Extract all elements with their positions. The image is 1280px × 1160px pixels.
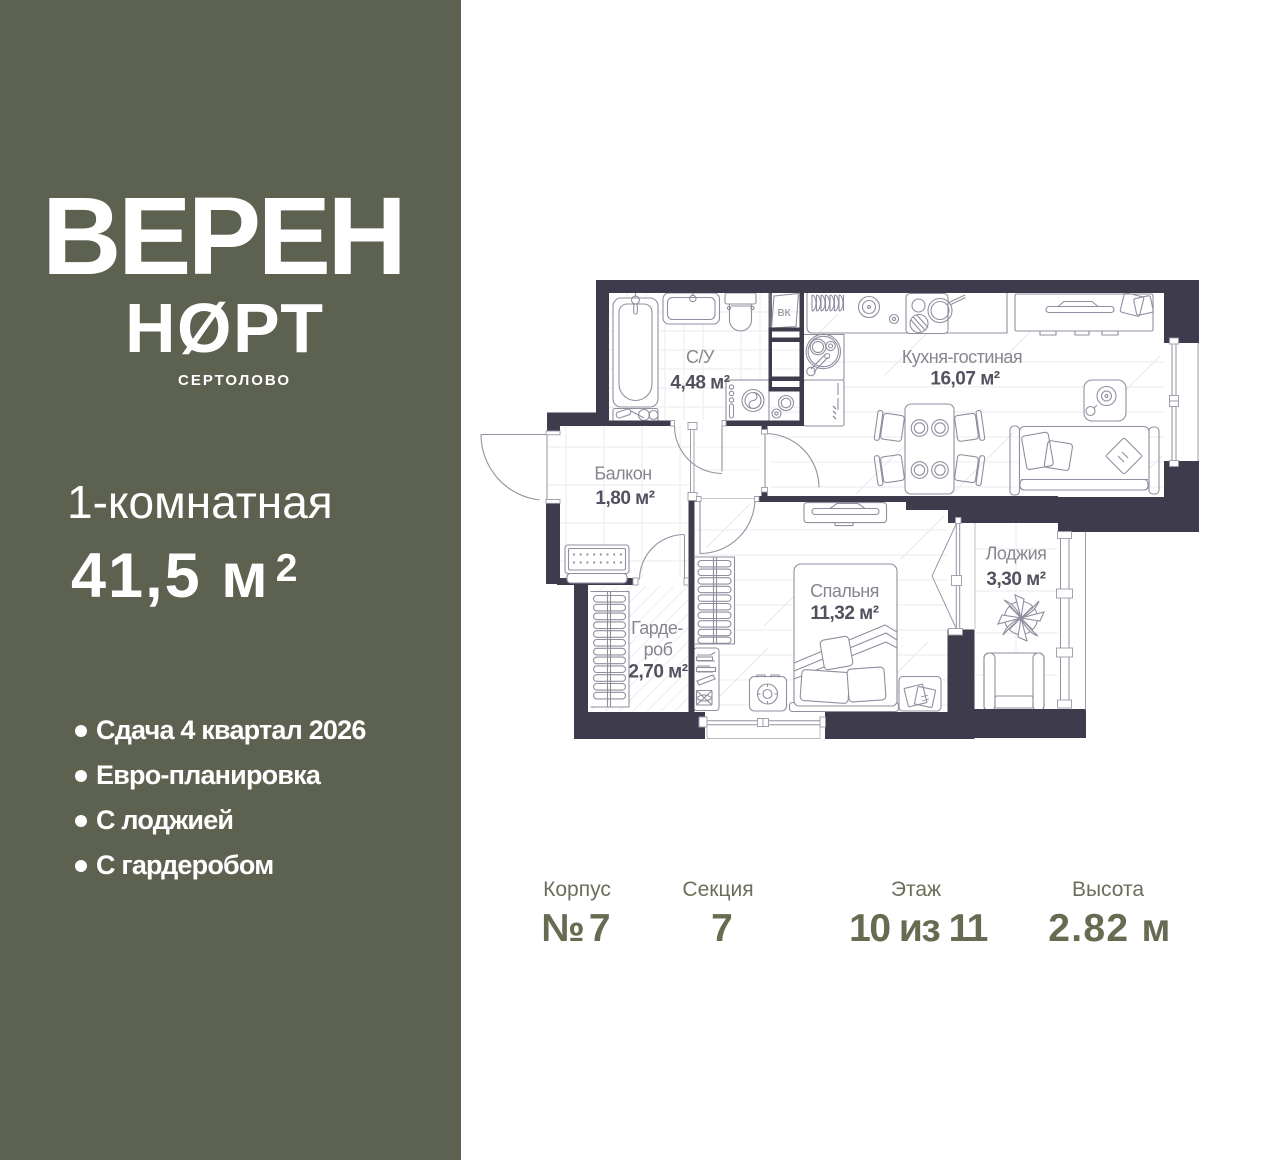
svg-text:Спальня: Спальня — [810, 581, 879, 601]
svg-text:11,32 м²: 11,32 м² — [810, 603, 878, 624]
svg-text:16,07 м²: 16,07 м² — [930, 369, 999, 390]
svg-text:3,30 м²: 3,30 м² — [986, 569, 1045, 590]
svg-text:Балкон: Балкон — [594, 464, 651, 484]
svg-text:4,48 м²: 4,48 м² — [670, 373, 729, 394]
svg-text:ВК: ВК — [778, 307, 792, 319]
svg-text:1,80 м²: 1,80 м² — [595, 488, 654, 509]
svg-text:2,70 м²: 2,70 м² — [628, 662, 687, 683]
svg-text:Кухня-гостиная: Кухня-гостиная — [902, 347, 1022, 367]
svg-text:С/У: С/У — [686, 347, 715, 367]
svg-text:Гарде-: Гарде- — [631, 618, 683, 638]
svg-text:роб: роб — [644, 640, 673, 660]
svg-text:Лоджия: Лоджия — [986, 544, 1047, 564]
